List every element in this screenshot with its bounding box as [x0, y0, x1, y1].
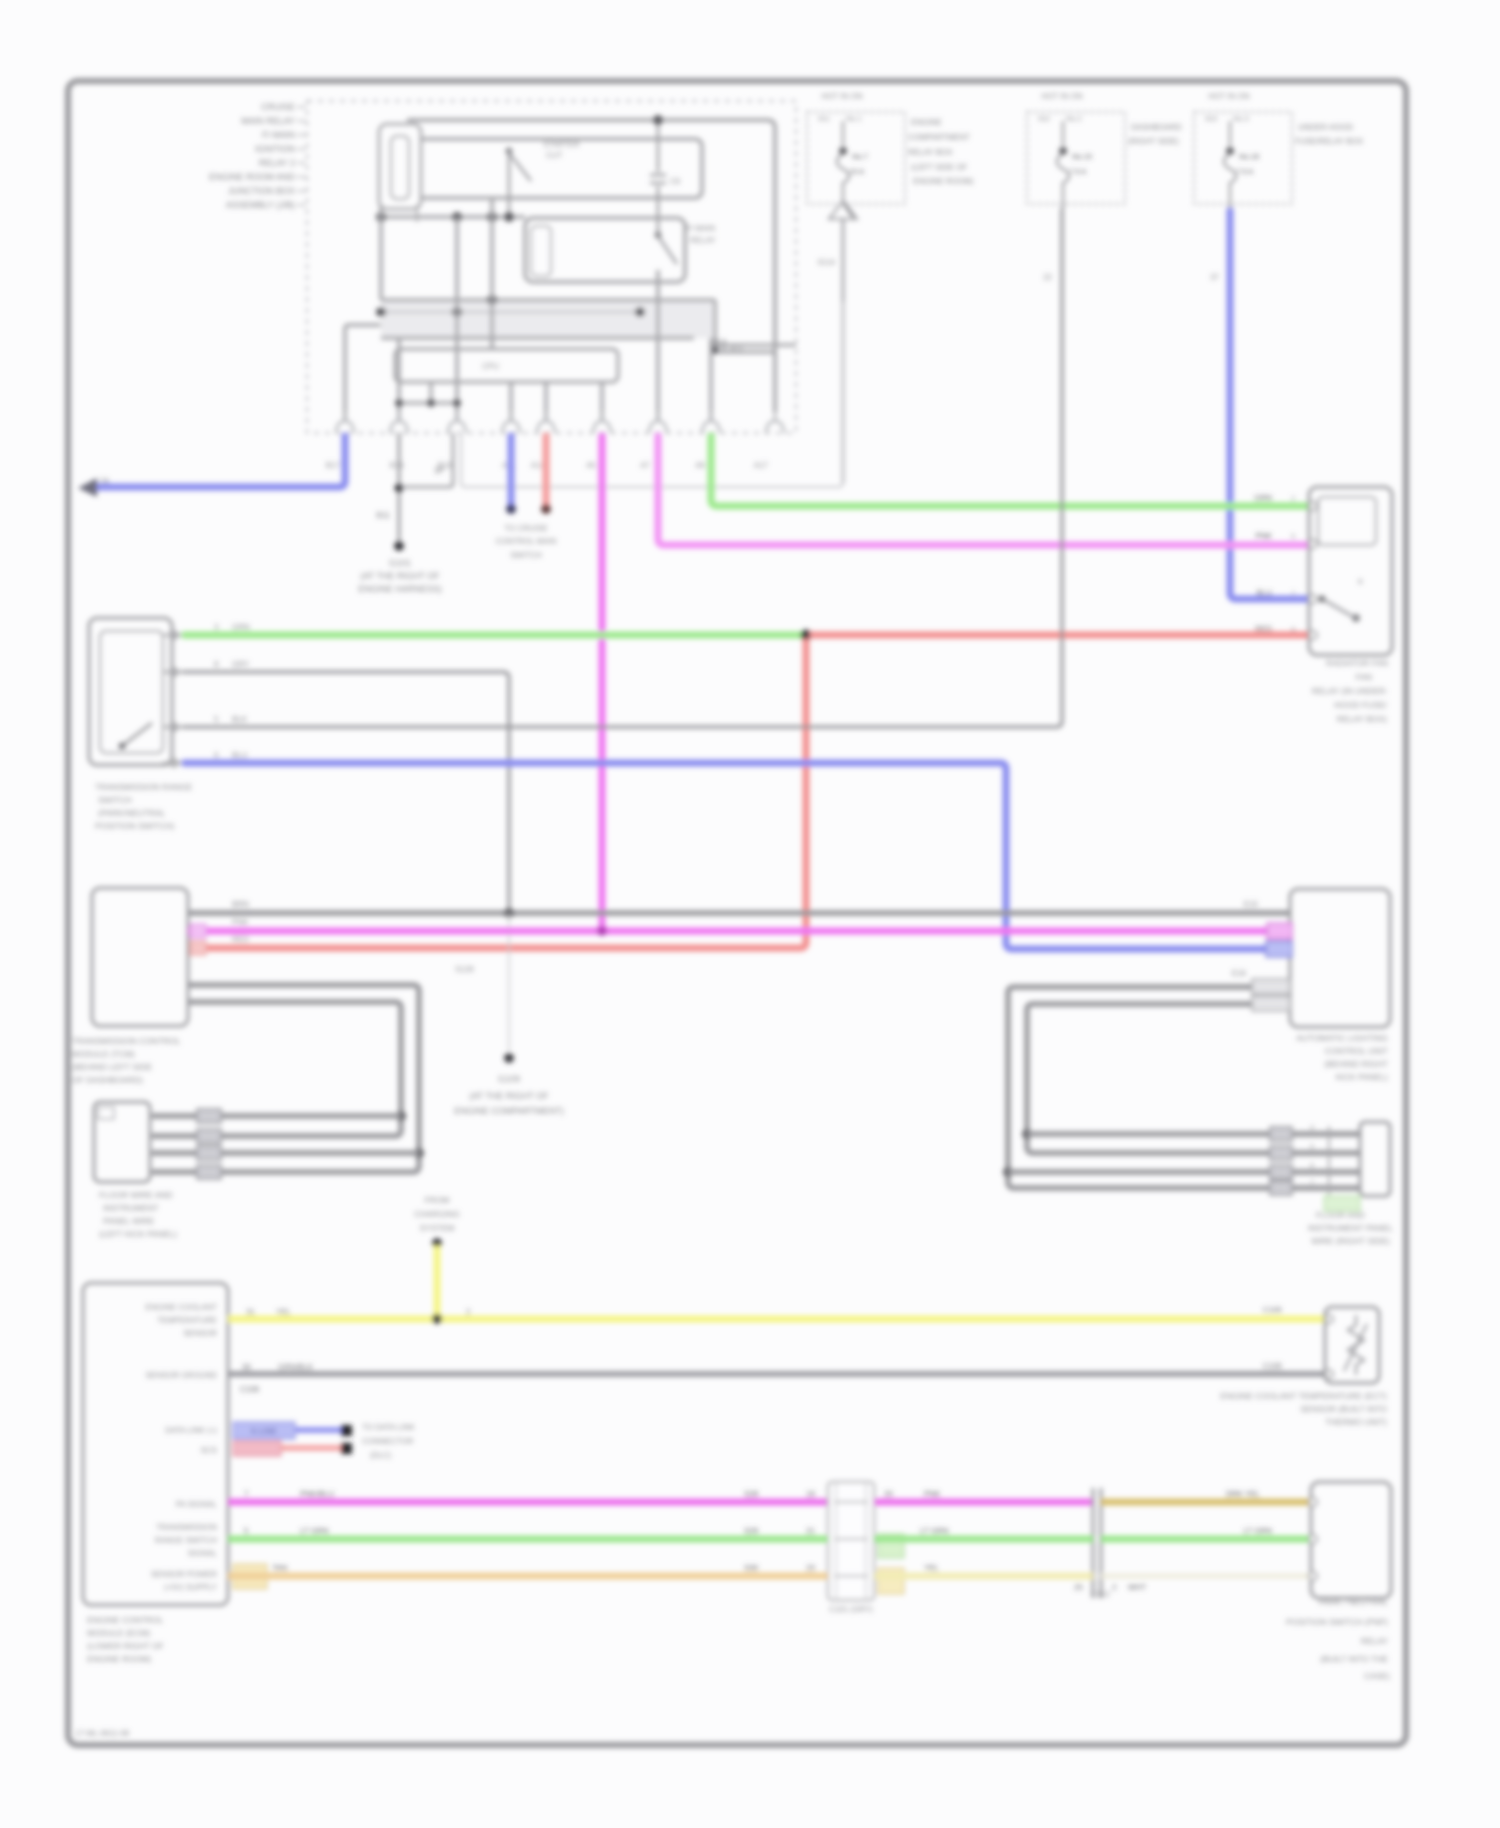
- svg-text:G101: G101: [389, 558, 411, 568]
- svg-text:K-LINE: K-LINE: [251, 1427, 277, 1436]
- svg-text:30: 30: [242, 1363, 251, 1372]
- svg-text:BLU: BLU: [1256, 589, 1272, 598]
- svg-text:23: 23: [806, 1564, 815, 1573]
- svg-text:C106: C106: [240, 1385, 260, 1394]
- svg-text:RED: RED: [1255, 625, 1272, 634]
- svg-text:7.5 A: 7.5 A: [1069, 167, 1086, 176]
- svg-text:ENGINE ROOM): ENGINE ROOM): [913, 177, 974, 186]
- svg-text:POSITION SWITCH (PNP): POSITION SWITCH (PNP): [1286, 1617, 1388, 1627]
- svg-text:ENGINE: ENGINE: [911, 118, 942, 127]
- svg-text:KICK PANEL): KICK PANEL): [1336, 1072, 1388, 1082]
- svg-text:37: 37: [1210, 273, 1219, 282]
- svg-text:GRN: GRN: [232, 623, 250, 632]
- svg-text:No.7: No.7: [852, 152, 868, 161]
- svg-text:25: 25: [1074, 1583, 1083, 1592]
- svg-text:E15: E15: [1244, 900, 1259, 909]
- svg-text:ENGINE COOLANT TEMPERATURE (EC: ENGINE COOLANT TEMPERATURE (ECT): [1220, 1391, 1387, 1401]
- svg-text:WIRE (RIGHT SIDE): WIRE (RIGHT SIDE): [1311, 1236, 1390, 1246]
- svg-text:2: 2: [1291, 496, 1295, 503]
- svg-text:LT GRN: LT GRN: [300, 1527, 329, 1536]
- svg-text:B16: B16: [390, 461, 405, 470]
- svg-text:5: 5: [1291, 534, 1295, 541]
- svg-text:S128: S128: [455, 965, 474, 974]
- svg-text:PNK: PNK: [1256, 532, 1273, 541]
- svg-text:RELAY BOX): RELAY BOX): [1337, 714, 1387, 724]
- svg-text:5: 5: [244, 1527, 249, 1536]
- svg-text:GRN: GRN: [1254, 494, 1272, 503]
- svg-text:UNDER-HOOD: UNDER-HOOD: [1298, 123, 1353, 132]
- svg-text:RELAY 2: RELAY 2: [259, 158, 295, 168]
- svg-text:C105: C105: [1263, 1362, 1283, 1371]
- svg-text:HOT IN ON: HOT IN ON: [1041, 92, 1082, 101]
- svg-text:No.3: No.3: [1233, 114, 1249, 123]
- svg-text:C105: C105: [1263, 1306, 1283, 1315]
- svg-text:TRANSMISSION: TRANSMISSION: [156, 1523, 217, 1532]
- svg-text:HOT IN ON: HOT IN ON: [1208, 92, 1249, 101]
- svg-text:FROM: FROM: [424, 1195, 449, 1205]
- svg-text:SCS: SCS: [201, 1446, 217, 1455]
- svg-text:RELAY (IN UNDER-: RELAY (IN UNDER-: [1312, 686, 1388, 696]
- svg-text:MODULE (ECM): MODULE (ECM): [87, 1628, 150, 1638]
- svg-text:FAN: FAN: [1355, 672, 1372, 682]
- svg-text:S28: S28: [744, 1490, 759, 1499]
- svg-text:CRUISE: CRUISE: [261, 102, 295, 112]
- svg-text:20: 20: [884, 1490, 893, 1499]
- svg-text:INSTRUMENT: INSTRUMENT: [103, 1203, 159, 1213]
- svg-text:ENGINE COOLANT: ENGINE COOLANT: [145, 1303, 217, 1312]
- svg-text:7: 7: [1310, 1180, 1314, 1187]
- svg-text:CONNECTOR: CONNECTOR: [362, 1437, 414, 1446]
- svg-text:SENSOR (BUILT INTO: SENSOR (BUILT INTO: [1300, 1404, 1387, 1414]
- svg-text:RANGE SWITCH: RANGE SWITCH: [155, 1536, 217, 1545]
- svg-text:7: 7: [1291, 591, 1295, 598]
- svg-text:SENSOR GROUND: SENSOR GROUND: [145, 1371, 217, 1380]
- svg-text:FLOOR AND: FLOOR AND: [1316, 1210, 1365, 1220]
- svg-text:CHARGING: CHARGING: [414, 1209, 460, 1219]
- svg-text:No.15: No.15: [1072, 152, 1092, 161]
- svg-text:FLOOR WIRE AND: FLOOR WIRE AND: [99, 1190, 173, 1200]
- svg-text:TO DATA LINK: TO DATA LINK: [362, 1423, 416, 1432]
- svg-text:7: 7: [244, 1490, 249, 1499]
- svg-text:BLU: BLU: [232, 751, 248, 760]
- svg-text:No.1: No.1: [846, 114, 862, 123]
- svg-text:RED: RED: [232, 935, 249, 944]
- svg-text:B11: B11: [730, 345, 744, 354]
- svg-text:HOT IN ON: HOT IN ON: [821, 92, 862, 101]
- svg-text:B: B: [1358, 579, 1363, 586]
- svg-text:PNK/BLU: PNK/BLU: [300, 1490, 334, 1499]
- svg-text:LT GRN: LT GRN: [1243, 1527, 1272, 1536]
- svg-text:CONTROL MAIN: CONTROL MAIN: [495, 537, 556, 546]
- svg-text:A7: A7: [640, 461, 650, 470]
- svg-text:3: 3: [214, 623, 219, 632]
- svg-text:ENGINE ROOM): ENGINE ROOM): [87, 1654, 151, 1664]
- svg-text:(LEFT KICK PANEL): (LEFT KICK PANEL): [99, 1229, 177, 1239]
- svg-text:FUSE/RELAY BOX: FUSE/RELAY BOX: [1295, 137, 1364, 146]
- svg-text:FI MAIN: FI MAIN: [262, 130, 295, 140]
- svg-text:21: 21: [806, 1527, 815, 1536]
- svg-text:YEL: YEL: [276, 1308, 292, 1317]
- svg-text:RELAY: RELAY: [1361, 1636, 1389, 1646]
- svg-text:A9: A9: [695, 461, 705, 470]
- svg-text:CPU: CPU: [482, 362, 499, 371]
- svg-text:7.5 A: 7.5 A: [1236, 167, 1253, 176]
- svg-text:WHT: WHT: [1128, 1583, 1146, 1592]
- svg-text:A17: A17: [754, 461, 769, 470]
- svg-text:IGNITION: IGNITION: [255, 144, 295, 154]
- svg-text:GRY: GRY: [232, 660, 250, 669]
- svg-text:C6: C6: [670, 177, 681, 186]
- svg-text:24: 24: [100, 477, 109, 486]
- svg-text:TRANSMISSION RANGE: TRANSMISSION RANGE: [95, 782, 193, 792]
- svg-text:ENGINE CONTROL: ENGINE CONTROL: [87, 1615, 164, 1625]
- svg-text:HOOD FUSE/: HOOD FUSE/: [1334, 700, 1388, 710]
- svg-text:19: 19: [806, 1490, 815, 1499]
- svg-text:CONTROL UNIT: CONTROL UNIT: [1325, 1046, 1388, 1056]
- svg-text:IG2: IG2: [1038, 114, 1050, 123]
- svg-text:E16: E16: [1232, 969, 1247, 978]
- svg-text:IG1: IG1: [818, 114, 830, 123]
- svg-text:22: 22: [1043, 273, 1052, 282]
- svg-text:SENSOR POWER: SENSOR POWER: [151, 1570, 217, 1579]
- svg-text:JUNCTION BOX: JUNCTION BOX: [228, 186, 295, 196]
- svg-text:5: 5: [1310, 1144, 1314, 1151]
- svg-text:TAN: TAN: [272, 1564, 288, 1573]
- svg-text:8: 8: [214, 660, 219, 669]
- svg-text:B11: B11: [376, 511, 390, 520]
- svg-text:C101 (GRY): C101 (GRY): [829, 1605, 873, 1614]
- svg-text:17-ML-0611-08: 17-ML-0611-08: [75, 1729, 130, 1738]
- svg-text:TO CRUISE: TO CRUISE: [504, 524, 547, 533]
- svg-text:ASSEMBLY (J/B): ASSEMBLY (J/B): [226, 200, 295, 210]
- svg-text:6: 6: [214, 751, 219, 760]
- svg-text:SIGNAL: SIGNAL: [188, 1549, 218, 1558]
- svg-text:ENGINE ROOM AND: ENGINE ROOM AND: [209, 172, 296, 182]
- svg-text:ENGINE COMPARTMENT): ENGINE COMPARTMENT): [454, 1106, 564, 1116]
- svg-text:(AT THE RIGHT OF: (AT THE RIGHT OF: [360, 571, 440, 581]
- svg-text:RADIATOR FAN: RADIATOR FAN: [1326, 658, 1388, 668]
- svg-text:RELAY BOX: RELAY BOX: [908, 148, 953, 157]
- svg-text:BRN: BRN: [232, 900, 249, 909]
- svg-text:YEL: YEL: [924, 1564, 940, 1573]
- svg-text:SWITCH: SWITCH: [510, 551, 542, 560]
- svg-text:(AT THE RIGHT OF: (AT THE RIGHT OF: [469, 1091, 549, 1101]
- svg-text:PARK / NEUTRAL: PARK / NEUTRAL: [1319, 1597, 1389, 1607]
- svg-text:G109: G109: [498, 1074, 520, 1084]
- svg-text:MODULE (TCM): MODULE (TCM): [72, 1049, 135, 1059]
- svg-text:DATA LINK (+): DATA LINK (+): [165, 1426, 217, 1435]
- svg-text:ENGINE HARNESS): ENGINE HARNESS): [358, 584, 442, 594]
- svg-text:9: 9: [1291, 627, 1295, 634]
- svg-text:IG3: IG3: [1205, 114, 1217, 123]
- svg-text:TEMPERATURE: TEMPERATURE: [157, 1316, 217, 1325]
- svg-text:(BEHIND LEFT SIDE: (BEHIND LEFT SIDE: [72, 1062, 152, 1072]
- svg-text:No.2: No.2: [1066, 114, 1082, 123]
- svg-text:MAIN RELAY: MAIN RELAY: [241, 116, 295, 126]
- svg-text:1P: 1P: [434, 466, 444, 475]
- svg-text:(BUILT INTO THE: (BUILT INTO THE: [1320, 1654, 1388, 1664]
- svg-text:SWITCH: SWITCH: [98, 795, 132, 805]
- svg-text:OF DASHBOARD): OF DASHBOARD): [72, 1075, 143, 1085]
- svg-text:IG14: IG14: [818, 258, 836, 267]
- svg-text:FI MAIN: FI MAIN: [686, 224, 716, 233]
- svg-text:TRANSMISSION CONTROL: TRANSMISSION CONTROL: [72, 1036, 181, 1046]
- svg-text:S30: S30: [744, 1564, 759, 1573]
- svg-text:A5: A5: [586, 461, 596, 470]
- svg-text:CUT: CUT: [546, 151, 563, 160]
- svg-text:(LEFT SIDE OF: (LEFT SIDE OF: [911, 163, 967, 172]
- svg-text:PNK: PNK: [232, 918, 249, 927]
- svg-text:AUTOMATIC LIGHTING: AUTOMATIC LIGHTING: [1296, 1033, 1388, 1043]
- svg-text:31: 31: [246, 1308, 255, 1317]
- svg-text:4: 4: [1310, 1125, 1314, 1132]
- svg-text:PA SIGNAL: PA SIGNAL: [176, 1500, 218, 1509]
- svg-text:STARTER: STARTER: [543, 140, 580, 149]
- svg-text:(BEHIND RIGHT: (BEHIND RIGHT: [1324, 1059, 1388, 1069]
- svg-text:INSTRUMENT PANEL: INSTRUMENT PANEL: [1308, 1223, 1393, 1233]
- svg-text:CASE): CASE): [1364, 1671, 1390, 1681]
- svg-text:15 A: 15 A: [849, 167, 864, 176]
- svg-text:(DLC): (DLC): [370, 1451, 392, 1460]
- svg-text:BLK: BLK: [232, 715, 248, 724]
- svg-text:2: 2: [1112, 1583, 1117, 1592]
- svg-text:S29: S29: [744, 1527, 759, 1536]
- svg-text:THERMO UNIT): THERMO UNIT): [1325, 1417, 1387, 1427]
- svg-text:SENSOR: SENSOR: [183, 1329, 217, 1338]
- svg-text:RELAY: RELAY: [690, 236, 716, 245]
- svg-text:PNK: PNK: [924, 1490, 941, 1499]
- svg-text:C113: C113: [1091, 1590, 1110, 1599]
- svg-text:DASHBOARD: DASHBOARD: [1131, 123, 1182, 132]
- svg-text:No.18: No.18: [1239, 152, 1259, 161]
- svg-text:GRN/BLK: GRN/BLK: [278, 1363, 314, 1372]
- svg-text:6: 6: [1310, 1163, 1314, 1170]
- svg-text:POSITION SWITCH): POSITION SWITCH): [95, 821, 175, 831]
- svg-text:5: 5: [214, 715, 219, 724]
- svg-text:DRK YEL: DRK YEL: [1226, 1490, 1261, 1499]
- svg-text:PANEL WIRE: PANEL WIRE: [103, 1216, 155, 1226]
- svg-text:COMPARTMENT: COMPARTMENT: [908, 133, 970, 142]
- svg-text:(+5V) SUPPLY: (+5V) SUPPLY: [164, 1583, 218, 1592]
- svg-text:(RIGHT SIDE): (RIGHT SIDE): [1128, 137, 1179, 146]
- svg-text:2: 2: [466, 1308, 471, 1317]
- svg-text:(LOWER RIGHT OF: (LOWER RIGHT OF: [87, 1641, 164, 1651]
- svg-text:(PARK/NEUTRAL: (PARK/NEUTRAL: [98, 808, 166, 818]
- svg-text:LT GRN: LT GRN: [920, 1527, 949, 1536]
- svg-text:SYSTEM: SYSTEM: [420, 1223, 455, 1233]
- svg-text:B17: B17: [326, 461, 341, 470]
